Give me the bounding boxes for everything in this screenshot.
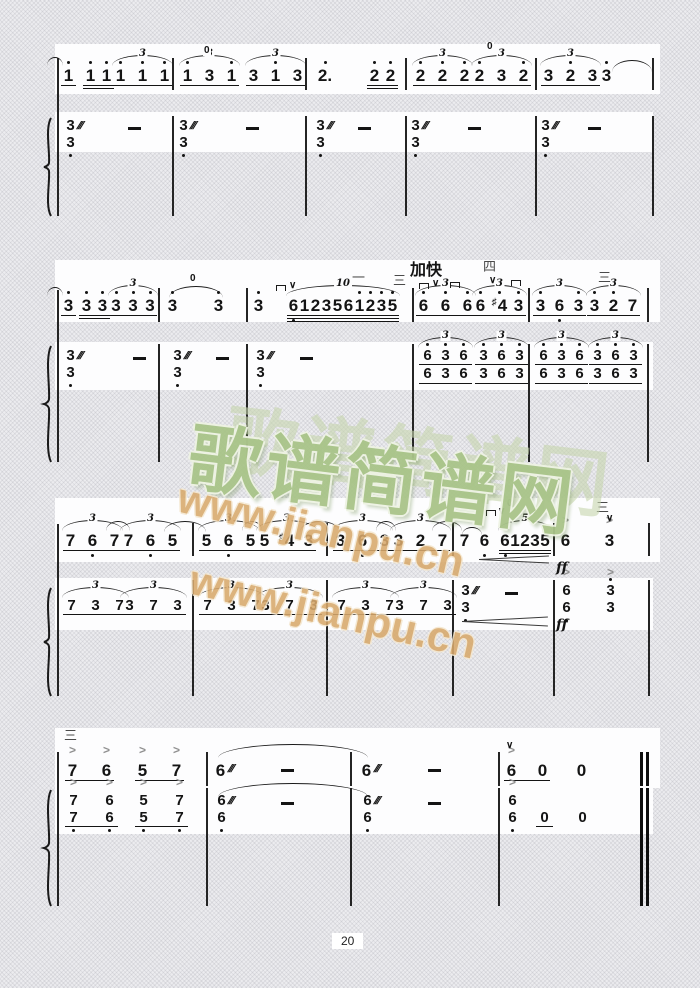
- note-6: 6: [102, 810, 117, 826]
- tuplet-number: 3: [145, 514, 156, 524]
- note-digit: 3: [461, 583, 469, 599]
- tuplet-number: 3: [556, 331, 567, 341]
- note-digit: 2: [438, 66, 447, 86]
- note-digit: 3: [380, 531, 389, 551]
- octave-dot-low: [108, 829, 111, 832]
- beam-line: [287, 321, 399, 322]
- note-digit: 3: [497, 66, 506, 86]
- note-2: 2.: [315, 66, 335, 86]
- note-group: 3: [166, 296, 179, 316]
- note-group: 2223: [414, 66, 471, 86]
- tuplet-number: 3: [223, 514, 234, 524]
- note-row: 6: [214, 761, 227, 781]
- chord-group: 3633633: [476, 348, 527, 382]
- barline: [528, 344, 530, 462]
- note-digit: 7: [149, 598, 157, 614]
- note-3: 3>: [603, 531, 616, 551]
- down-bow-icon: [276, 285, 286, 291]
- note-digit: 3: [629, 366, 637, 382]
- note-group: 2323: [473, 66, 530, 86]
- chord-stack: 3>3: [603, 583, 618, 616]
- note-7: 7: [626, 296, 639, 316]
- note-digit: 3: [66, 118, 74, 134]
- chord-stack: 33///: [170, 348, 185, 381]
- note-6: 6>: [505, 793, 520, 809]
- position-marking: 三: [598, 271, 611, 284]
- octave-dot-high: [85, 291, 88, 294]
- note-3: 3: [626, 348, 641, 364]
- note-digit: 3: [179, 118, 187, 134]
- note-group: 3273: [588, 296, 639, 316]
- position-marking: 三: [64, 729, 77, 742]
- note-digit: 5: [139, 810, 147, 826]
- note-group: 5♯433: [258, 531, 315, 551]
- note-digit: 1: [86, 66, 95, 86]
- note-3: 3: [313, 135, 328, 151]
- note-1: 1: [114, 66, 127, 86]
- octave-dot-high: [67, 291, 70, 294]
- barline: [206, 788, 208, 906]
- note-row: 6>: [559, 531, 572, 551]
- note-0: 0: [575, 761, 588, 781]
- chord-bottom-row: 636: [420, 366, 471, 382]
- note-row: 737: [64, 598, 127, 614]
- note-digit: 6: [362, 761, 371, 781]
- accent-icon: >: [173, 745, 180, 755]
- note-digit: 6: [289, 296, 298, 316]
- note-digit: 3: [205, 66, 214, 86]
- down-bow-icon: [419, 283, 429, 289]
- note-1: 1: [136, 66, 149, 86]
- chord-bottom-row: 363: [590, 366, 641, 382]
- note-digit: 3: [557, 348, 565, 364]
- down-bow-icon: [450, 282, 460, 288]
- chord-stack: 33///: [313, 118, 328, 151]
- note-7: 7: [146, 598, 161, 614]
- barline: [158, 344, 160, 462]
- note-row: 33: [80, 296, 109, 316]
- note-digit: 7: [175, 793, 183, 809]
- note-5: 5: [244, 531, 257, 551]
- octave-dot-low: [544, 154, 547, 157]
- system-brace: [40, 788, 54, 908]
- note-row: 737: [334, 598, 397, 614]
- note-digit: 3: [66, 348, 74, 364]
- note-digit: 3: [593, 348, 601, 364]
- note-digit: 2: [386, 66, 395, 86]
- note-digit: 3: [227, 598, 235, 614]
- octave-dot-high: [101, 291, 104, 294]
- beam-line: [367, 88, 398, 89]
- chord-top-row: 636: [420, 348, 471, 364]
- note-0: 0: [537, 810, 552, 826]
- note-6: 6: [360, 810, 375, 826]
- note-3: 3: [258, 598, 273, 614]
- beam-line: [199, 614, 264, 615]
- note-6: 6>: [559, 583, 574, 599]
- note-2: 2: [365, 296, 376, 316]
- note-3: 3: [458, 600, 473, 616]
- note-5: 5: [200, 531, 213, 551]
- dash-rest: [588, 127, 601, 130]
- note-digit: 3: [336, 531, 345, 551]
- note-digit: 2.: [318, 66, 332, 86]
- note-3: 3: [530, 531, 540, 551]
- note-3: 3: [440, 598, 455, 614]
- note-6: 6: [144, 531, 157, 551]
- final-double-barline: [646, 788, 649, 906]
- note-6: 6: [559, 600, 574, 616]
- accent-icon: >: [106, 777, 113, 787]
- dash-rest: [128, 127, 141, 130]
- note-digit: 6: [611, 366, 619, 382]
- system-start-line: [57, 290, 59, 462]
- note-3: 3: [127, 296, 139, 316]
- note-group: 612356123510: [288, 296, 398, 316]
- beam-line: [419, 364, 472, 365]
- note-digit: 3: [605, 531, 614, 551]
- note-3: 3: [438, 348, 453, 364]
- note-digit: 2: [520, 531, 529, 551]
- note-group: 3>: [603, 531, 616, 551]
- barline: [553, 580, 555, 696]
- dash-rest: [468, 127, 481, 130]
- note-1: 1: [84, 66, 97, 86]
- system-brace: [40, 116, 54, 218]
- page-number: 20: [332, 933, 363, 949]
- note-digit: 3: [541, 118, 549, 134]
- note-digit: 3: [98, 296, 107, 316]
- final-double-barline: [640, 788, 643, 906]
- note-digit: 3: [590, 296, 599, 316]
- note-group: 3733: [392, 598, 455, 614]
- note-row: 313: [247, 66, 304, 86]
- note-digit: 3: [557, 366, 565, 382]
- note-2: 2: [414, 531, 427, 551]
- note-digit: 3: [316, 135, 324, 151]
- dash-rest: [133, 357, 146, 360]
- note-group: 3733: [258, 598, 321, 614]
- note-3: 3: [247, 66, 260, 86]
- note-group: 6///: [214, 761, 227, 781]
- note-6: 6: [86, 531, 99, 551]
- note-row: 765: [122, 531, 179, 551]
- tuplet-number: 3: [90, 581, 101, 591]
- note-6: 6: [214, 761, 227, 781]
- open-string-fingering: 0: [203, 46, 211, 56]
- tuplet-number: 3: [226, 581, 237, 591]
- note-3: 3: [253, 365, 268, 381]
- beam-line: [535, 383, 588, 384]
- note-digit: 3: [441, 366, 449, 382]
- note-digit: 1: [160, 66, 169, 86]
- beam-line: [61, 315, 76, 316]
- note-3: 3: [110, 296, 122, 316]
- note-digit: 6: [497, 348, 505, 364]
- tuplet-number: 3: [565, 49, 576, 59]
- note-digit: 5: [388, 296, 397, 316]
- note-digit: 6: [224, 531, 233, 551]
- note-digit: 3: [173, 348, 181, 364]
- note-digit: 7: [66, 531, 75, 551]
- note-digit: 1: [116, 66, 125, 86]
- note-3: 3: [62, 296, 75, 316]
- note-1: 1: [354, 296, 365, 316]
- beam-line: [113, 85, 172, 86]
- note-1: 1: [62, 66, 75, 86]
- note-3: 3: [96, 296, 109, 316]
- up-bow-icon: ∨: [606, 514, 613, 523]
- note-row: 22: [368, 66, 397, 86]
- note-6: 6: [222, 531, 235, 551]
- note-digit: 3: [309, 598, 317, 614]
- beam-line: [135, 826, 188, 827]
- note-digit: 3: [168, 296, 177, 316]
- accent-icon: >: [607, 567, 614, 577]
- note-digit: 1: [300, 296, 309, 316]
- note-digit: 6: [539, 366, 547, 382]
- note-7: 7>: [172, 793, 187, 809]
- note-digit: 3: [377, 296, 386, 316]
- note-digit: 5: [260, 531, 269, 551]
- note-digit: 3: [593, 366, 601, 382]
- note-digit: 6: [561, 531, 570, 551]
- note-digit: 3: [82, 296, 91, 316]
- tuplet-number: 3: [357, 514, 368, 524]
- note-digit: 3: [128, 296, 137, 316]
- chord-stack: 66///: [360, 793, 375, 826]
- note-row: 1: [62, 66, 75, 86]
- note-3: 3: [252, 296, 265, 316]
- beam-line: [121, 550, 180, 551]
- note-group: 1113: [114, 66, 171, 86]
- note-digit: 3: [602, 66, 611, 86]
- note-digit: 3: [249, 66, 258, 86]
- note-1: 1: [510, 531, 520, 551]
- note-7: 7: [64, 531, 77, 551]
- chord-top-row: 636: [536, 348, 587, 364]
- note-digit: 3: [361, 598, 369, 614]
- tuplet-number: 3: [284, 581, 295, 591]
- beam-line: [65, 826, 118, 827]
- tuplet-number: 10: [334, 279, 352, 289]
- note-row: 3: [62, 296, 75, 316]
- note-digit: 3: [394, 531, 403, 551]
- dynamic-marking: ff: [556, 619, 568, 632]
- note-digit: 6: [508, 810, 516, 826]
- tuplet-number: 3: [87, 514, 98, 524]
- note-6: 6: [356, 531, 369, 551]
- beam-line: [391, 550, 450, 551]
- note-2: 2: [436, 66, 449, 86]
- note-digit: 3: [254, 296, 263, 316]
- beam-line: [533, 315, 586, 316]
- note-digit: 1: [355, 296, 364, 316]
- note-row: 767: [64, 531, 121, 551]
- note-digit: 3: [479, 366, 487, 382]
- note-digit: 6: [500, 531, 509, 551]
- note-2: 2: [310, 296, 321, 316]
- barline: [647, 288, 649, 322]
- barline: [498, 788, 500, 906]
- note-digit: 6: [508, 793, 516, 809]
- note-digit: 3: [173, 598, 181, 614]
- note-digit: 3: [66, 365, 74, 381]
- tempo-marking: 加快: [410, 262, 442, 279]
- barline: [652, 116, 654, 216]
- barline: [158, 288, 160, 322]
- tuplet-number: 3: [270, 49, 281, 59]
- note-row: 222: [414, 66, 471, 86]
- chord-bottom-row: 363: [476, 366, 527, 382]
- note-digit: 3: [443, 598, 451, 614]
- note-row: 0: [537, 810, 552, 826]
- chord-group: 3633633: [590, 348, 641, 382]
- note-row: 5♯43: [258, 531, 315, 551]
- beam-line: [587, 315, 640, 316]
- octave-dot-low: [220, 829, 223, 832]
- accent-icon: >: [176, 777, 183, 787]
- note-3: 3: [392, 531, 405, 551]
- octave-dot-low: [91, 554, 94, 557]
- note-row: 3: [252, 296, 265, 316]
- beam-line: [416, 315, 475, 316]
- beam-line: [61, 85, 76, 86]
- accent-icon: >: [139, 745, 146, 755]
- note-3: 3: [334, 531, 347, 551]
- up-bow-icon: ∨: [506, 741, 513, 750]
- up-bow-icon: ∨: [432, 279, 439, 288]
- note-2: 2: [368, 66, 381, 86]
- note-3: 3: [63, 135, 78, 151]
- note-group: 6>: [559, 531, 572, 551]
- note-5: 5: [387, 296, 398, 316]
- beam-line: [475, 364, 528, 365]
- note-row: 6: [360, 761, 373, 781]
- note-digit: 6: [575, 348, 583, 364]
- note-0: 0: [536, 761, 549, 781]
- note-group: 76: [66, 810, 117, 826]
- note-group: 7673: [64, 531, 121, 551]
- open-string-fingering: 0: [506, 499, 514, 509]
- note-5: 5: [540, 531, 550, 551]
- note-digit: 3: [395, 598, 403, 614]
- note-digit: 2: [366, 296, 375, 316]
- chord-group: 6366363: [536, 348, 587, 382]
- note-group: 7373: [200, 598, 263, 614]
- note-digit: 3: [64, 296, 73, 316]
- note-digit: 3: [629, 348, 637, 364]
- note-3: 3: [358, 598, 373, 614]
- note-1: 1: [299, 296, 310, 316]
- note-3: 3: [542, 66, 555, 86]
- note-digit: 1: [183, 66, 192, 86]
- barline: [647, 344, 649, 462]
- note-3: 3: [122, 598, 137, 614]
- tuplet-number: 3: [415, 514, 426, 524]
- note-group: 1: [62, 66, 75, 86]
- note-digit: 6: [88, 531, 97, 551]
- note-row: 61235: [500, 531, 550, 551]
- note-group: 6663: [417, 296, 474, 316]
- octave-dot-low: [414, 154, 417, 157]
- system-brace: [40, 344, 54, 464]
- sheet-music-page: 1111113131331332.22222323233233333///33/…: [0, 0, 700, 988]
- tuplet-number: 3: [610, 331, 621, 341]
- note-group: 7653: [122, 531, 179, 551]
- note-group: 3: [252, 296, 265, 316]
- note-group: 3333: [110, 296, 156, 316]
- dash-rest: [428, 802, 441, 805]
- note-row: 363: [534, 296, 585, 316]
- barline: [652, 58, 654, 90]
- note-3: 3: [170, 365, 185, 381]
- beam-line: [535, 364, 588, 365]
- note-group: 7373: [334, 598, 397, 614]
- note-3: 3: [63, 365, 78, 381]
- note-6: 6: [417, 296, 430, 316]
- note-digit: 5: [168, 531, 177, 551]
- tuplet-number: 3: [440, 331, 451, 341]
- system-brace: [40, 586, 54, 698]
- system-start-line: [57, 58, 59, 216]
- note-2: 2: [414, 66, 427, 86]
- note-6: 6>: [102, 793, 117, 809]
- note-6: 6: [360, 761, 373, 781]
- beam-line: [419, 383, 472, 384]
- beam-line: [541, 85, 600, 86]
- dash-rest: [428, 769, 441, 772]
- note-digit: 6: [497, 366, 505, 382]
- note-digit: 7: [203, 598, 211, 614]
- note-digit: 4: [498, 296, 507, 316]
- note-3: 3: [512, 366, 527, 382]
- note-6: 6: [553, 296, 566, 316]
- note-row: 11: [84, 66, 113, 86]
- note-digit: 6: [105, 810, 113, 826]
- note-digit: 3: [411, 135, 419, 151]
- note-digit: 2: [416, 531, 425, 551]
- note-digit: 3: [111, 296, 120, 316]
- beam-line: [472, 85, 531, 86]
- note-digit: 2: [460, 66, 469, 86]
- tuplet-number: 3: [137, 49, 148, 59]
- accent-icon: >: [509, 777, 516, 787]
- note-3: 3: [438, 366, 453, 382]
- tuplet-number: 3: [554, 279, 565, 289]
- note-3: 3: [586, 66, 599, 86]
- note-3: 3: [495, 66, 508, 86]
- note-digit: 3: [145, 296, 154, 316]
- note-group: 6♯433: [474, 296, 525, 316]
- note-digit: 7: [124, 531, 133, 551]
- note-digit: 3: [293, 66, 302, 86]
- dash-rest: [505, 592, 518, 595]
- octave-dot-low: [149, 554, 152, 557]
- chord-stack: 33///: [458, 583, 473, 616]
- note-group: 3633: [534, 296, 585, 316]
- octave-dot-low: [511, 829, 514, 832]
- note-row: 111: [114, 66, 171, 86]
- note-6: 6: [461, 296, 474, 316]
- note-2: 2: [517, 66, 530, 86]
- note-3: 3: [408, 135, 423, 151]
- barline: [246, 344, 248, 462]
- note-row: 0: [575, 810, 590, 826]
- note-6: 6: [343, 296, 354, 316]
- beam-line: [180, 85, 239, 86]
- position-marking: 一: [352, 271, 365, 284]
